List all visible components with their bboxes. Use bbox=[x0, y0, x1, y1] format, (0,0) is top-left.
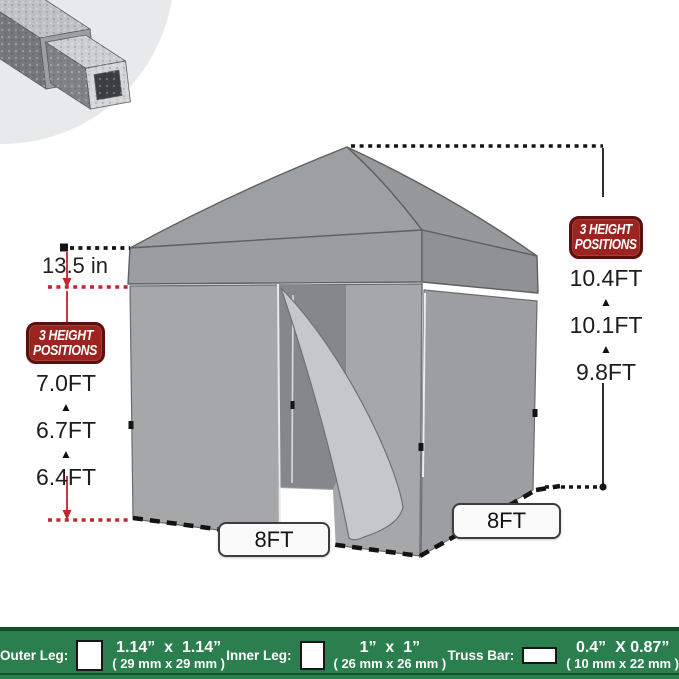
canopy-tent-dimension-diagram: 13.5 in 3 HEIGHT POSITIONS 7.0FT ▲ 6.7FT… bbox=[0, 0, 679, 679]
outer-leg-size-mm: ( 29 mm x 29 mm ) bbox=[112, 657, 225, 671]
valance-height-label: 13.5 in bbox=[38, 253, 112, 279]
square-tube-cross-section-icon bbox=[76, 640, 103, 671]
base-width-label-side: 8FT bbox=[452, 503, 561, 539]
spec-truss-bar: Truss Bar: 0.4” X 0.87” ( 10 mm x 22 mm … bbox=[448, 639, 679, 671]
outer-leg-size: 1.14” x 1.14” ( 29 mm x 29 mm ) bbox=[112, 639, 225, 671]
side-height-low: 6.4FT bbox=[22, 465, 110, 489]
height-positions-badge-right: 3 HEIGHT POSITIONS bbox=[569, 216, 643, 259]
peak-height-mid: 10.1FT bbox=[562, 313, 650, 337]
side-height-values: 7.0FT ▲ 6.7FT ▲ 6.4FT bbox=[22, 371, 110, 489]
badge-line1: 3 HEIGHT bbox=[38, 328, 92, 343]
side-height-mid: 6.7FT bbox=[22, 418, 110, 442]
base-width-value: 8FT bbox=[254, 527, 293, 553]
truss-bar-size: 0.4” X 0.87” ( 10 mm x 22 mm ) bbox=[566, 639, 679, 671]
base-width-value: 8FT bbox=[487, 508, 526, 534]
inner-leg-size-mm: ( 26 mm x 26 mm ) bbox=[334, 657, 447, 671]
inner-leg-size: 1” x 1” ( 26 mm x 26 mm ) bbox=[334, 639, 447, 671]
up-arrow-icon: ▲ bbox=[22, 448, 110, 460]
right-line-end-dot bbox=[599, 483, 606, 490]
outer-leg-label: Outer Leg: bbox=[0, 648, 68, 663]
peak-height-low: 9.8FT bbox=[562, 360, 650, 384]
truss-bar-size-mm: ( 10 mm x 22 mm ) bbox=[566, 657, 679, 671]
spec-bar: Outer Leg: 1.14” x 1.14” ( 29 mm x 29 mm… bbox=[0, 627, 679, 679]
truss-bar-label: Truss Bar: bbox=[448, 648, 515, 663]
side-height-high: 7.0FT bbox=[22, 371, 110, 395]
up-arrow-icon: ▲ bbox=[562, 296, 650, 308]
spec-inner-leg: Inner Leg: 1” x 1” ( 26 mm x 26 mm ) bbox=[225, 639, 448, 671]
peak-height-values: 10.4FT ▲ 10.1FT ▲ 9.8FT bbox=[562, 266, 650, 384]
square-tube-cross-section-icon bbox=[300, 641, 325, 670]
rectangular-tube-cross-section-icon bbox=[522, 647, 557, 664]
peak-height-high: 10.4FT bbox=[562, 266, 650, 290]
outer-leg-size-inches: 1.14” x 1.14” bbox=[112, 639, 225, 657]
height-positions-badge-left: 3 HEIGHT POSITIONS bbox=[26, 322, 105, 364]
badge-line1: 3 HEIGHT bbox=[580, 223, 632, 238]
spec-bar-rule bbox=[0, 673, 679, 675]
base-width-label-front: 8FT bbox=[218, 522, 330, 557]
badge-line2: POSITIONS bbox=[575, 238, 637, 253]
up-arrow-icon: ▲ bbox=[562, 343, 650, 355]
canopy-tent-illustration bbox=[128, 147, 538, 556]
leg-tube-photo bbox=[0, 0, 174, 144]
dim-square-marker bbox=[60, 244, 68, 252]
badge-line2: POSITIONS bbox=[33, 343, 97, 358]
truss-bar-size-inches: 0.4” X 0.87” bbox=[566, 639, 679, 657]
spec-outer-leg: Outer Leg: 1.14” x 1.14” ( 29 mm x 29 mm… bbox=[0, 639, 225, 671]
inner-leg-size-inches: 1” x 1” bbox=[334, 639, 447, 657]
red-arrow-down-upper bbox=[63, 278, 72, 288]
inner-leg-label: Inner Leg: bbox=[226, 648, 291, 663]
up-arrow-icon: ▲ bbox=[22, 401, 110, 413]
